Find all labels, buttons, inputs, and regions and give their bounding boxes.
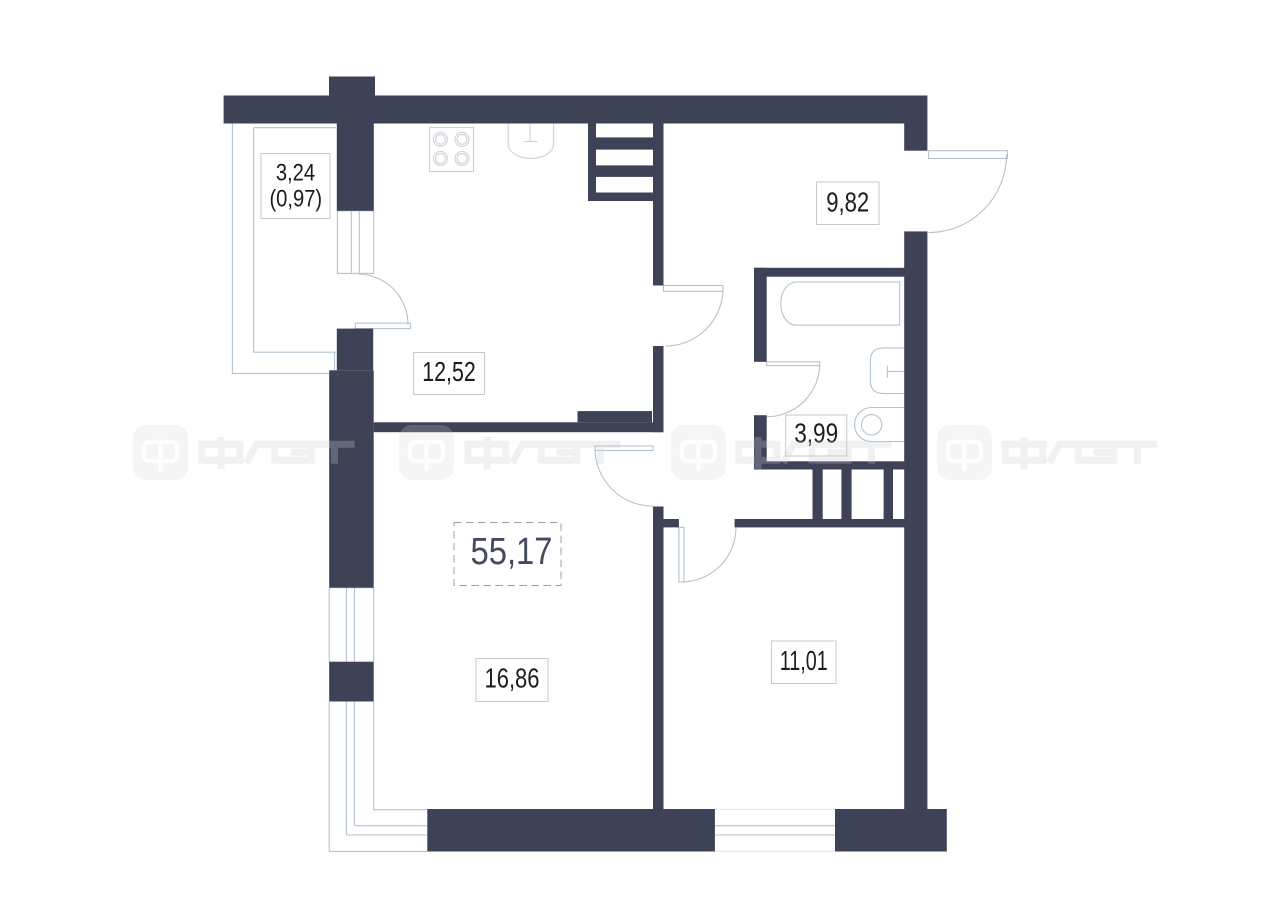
svg-text:12,52: 12,52 [422, 356, 476, 387]
svg-text:55,17: 55,17 [471, 531, 553, 573]
svg-text:3,24: 3,24 [276, 159, 315, 186]
svg-text:(0,97): (0,97) [269, 185, 322, 212]
svg-text:11,01: 11,01 [780, 645, 828, 676]
svg-text:9,82: 9,82 [826, 186, 869, 217]
svg-text:16,86: 16,86 [485, 663, 540, 694]
